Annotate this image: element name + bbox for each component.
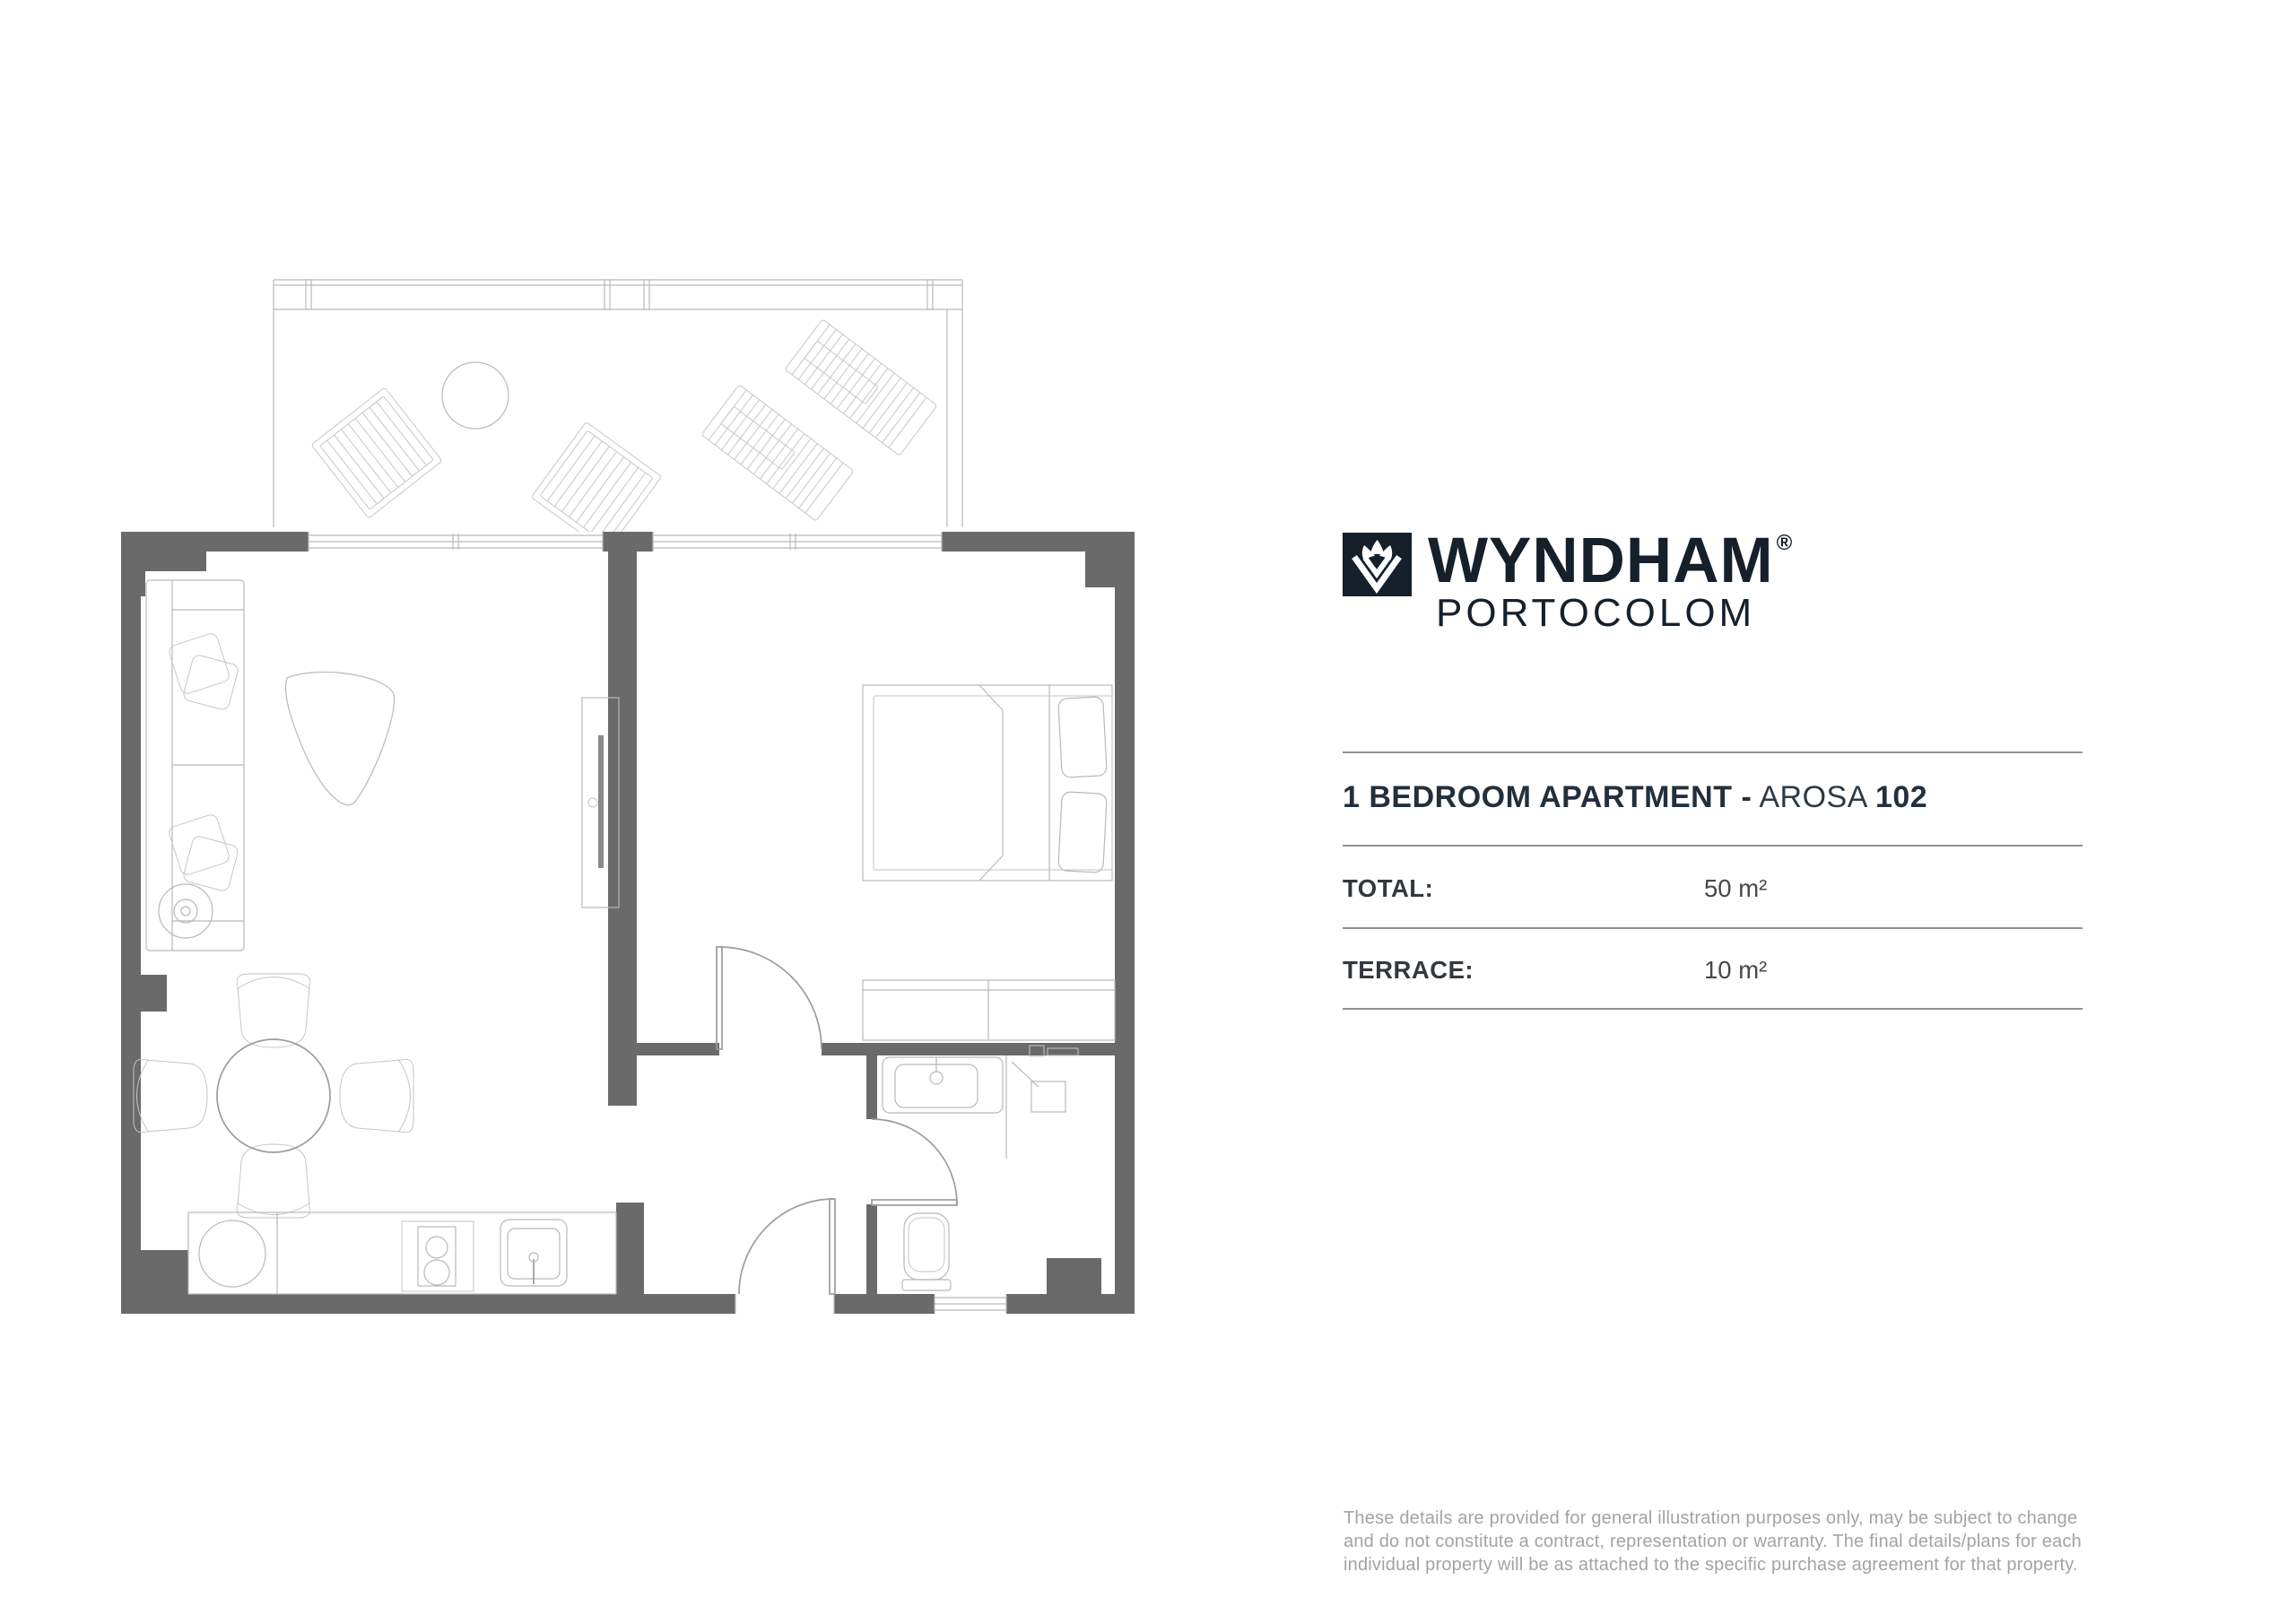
- bathroom-door: [872, 1119, 957, 1205]
- shower: [1006, 1046, 1078, 1159]
- sofa: [146, 580, 244, 951]
- sun-lounger: [785, 319, 937, 456]
- registered-mark: ®: [1777, 531, 1793, 555]
- divider: [1343, 1008, 2083, 1010]
- vanity-sink: [883, 1057, 1003, 1113]
- cooktop: [402, 1221, 474, 1291]
- terrace-railing: [274, 280, 962, 309]
- divider: [1343, 751, 2083, 753]
- pillow: [1058, 792, 1108, 873]
- dining-chair: [134, 1059, 207, 1133]
- title-name: AROSA: [1759, 780, 1866, 814]
- dining-chair: [237, 974, 310, 1047]
- spec-label-total: TOTAL:: [1343, 876, 1433, 901]
- floor-lamp: [159, 884, 213, 938]
- brand-subtitle: PORTOCOLOM: [1436, 594, 1755, 633]
- interior-walls: [608, 551, 1115, 1294]
- sun-lounger: [701, 385, 854, 521]
- listing-title: 1 BEDROOM APARTMENT - AROSA 102: [1343, 782, 1927, 812]
- dining-table: [217, 1039, 330, 1152]
- bedroom-door: [717, 947, 822, 1049]
- brand-logo: [1343, 533, 1412, 596]
- sofa-pillows: [168, 813, 239, 892]
- dresser: [863, 980, 1115, 1040]
- brand-wordmark: WYNDHAM®: [1428, 529, 1789, 593]
- rug: [286, 672, 395, 804]
- floor-plan: [0, 0, 2296, 1624]
- spec-label-terrace: TERRACE:: [1343, 958, 1474, 983]
- spec-value-total: 50 m²: [1704, 876, 1767, 901]
- dining-chair: [340, 1059, 413, 1133]
- dining-chair: [237, 1144, 310, 1218]
- divider: [1343, 845, 2083, 847]
- title-bold-lead: 1 BEDROOM APARTMENT -: [1343, 780, 1752, 814]
- disclaimer-text: These details are provided for general i…: [1344, 1507, 2108, 1576]
- terrace-table: [442, 362, 509, 429]
- terrace: [274, 280, 962, 552]
- kitchen-counter: [188, 1212, 616, 1294]
- bathroom-window: [935, 1296, 1006, 1312]
- terrace-outline: [274, 309, 962, 527]
- spec-value-terrace: 10 m²: [1704, 958, 1767, 983]
- dining-set: [134, 974, 413, 1218]
- sofa-pillows: [168, 632, 239, 711]
- kitchen-sink: [500, 1220, 567, 1286]
- wyndham-crest-icon: [1343, 533, 1412, 596]
- bed: [863, 685, 1112, 881]
- kitchen-appliance-round: [199, 1220, 265, 1287]
- page: WYNDHAM® PORTOCOLOM 1 BEDROOM APARTMENT …: [0, 0, 2296, 1624]
- entrance-door: [735, 1199, 835, 1314]
- pillow: [1058, 697, 1108, 777]
- terrace-chair: [311, 387, 442, 518]
- divider: [1343, 927, 2083, 929]
- toilet: [902, 1213, 951, 1290]
- title-unit: 102: [1875, 780, 1927, 814]
